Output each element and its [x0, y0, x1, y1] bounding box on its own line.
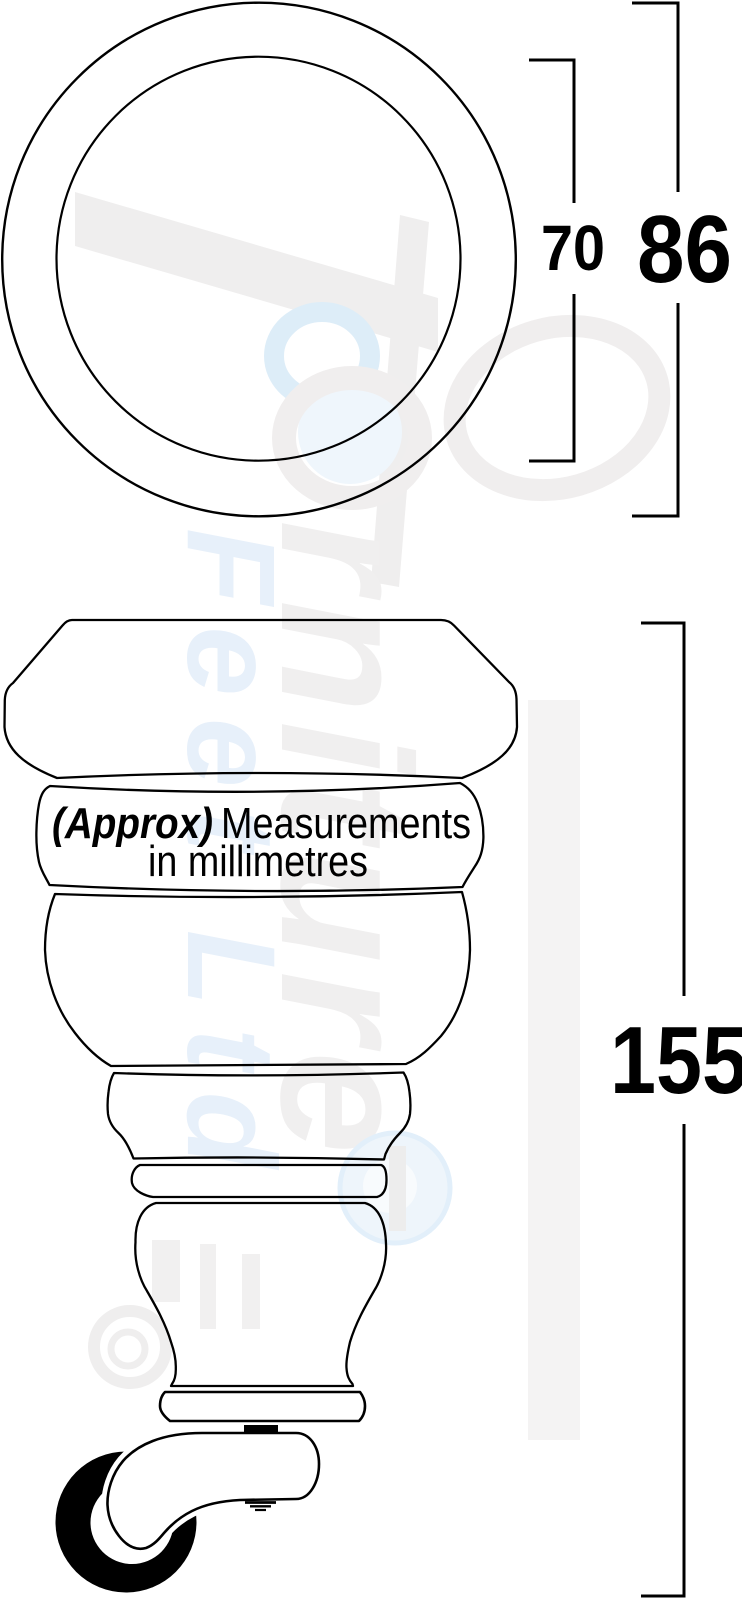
svg-text:86: 86 [637, 196, 732, 303]
svg-text:70: 70 [541, 212, 605, 284]
svg-text:155: 155 [610, 1007, 742, 1114]
svg-text:in millimetres: in millimetres [148, 837, 368, 886]
